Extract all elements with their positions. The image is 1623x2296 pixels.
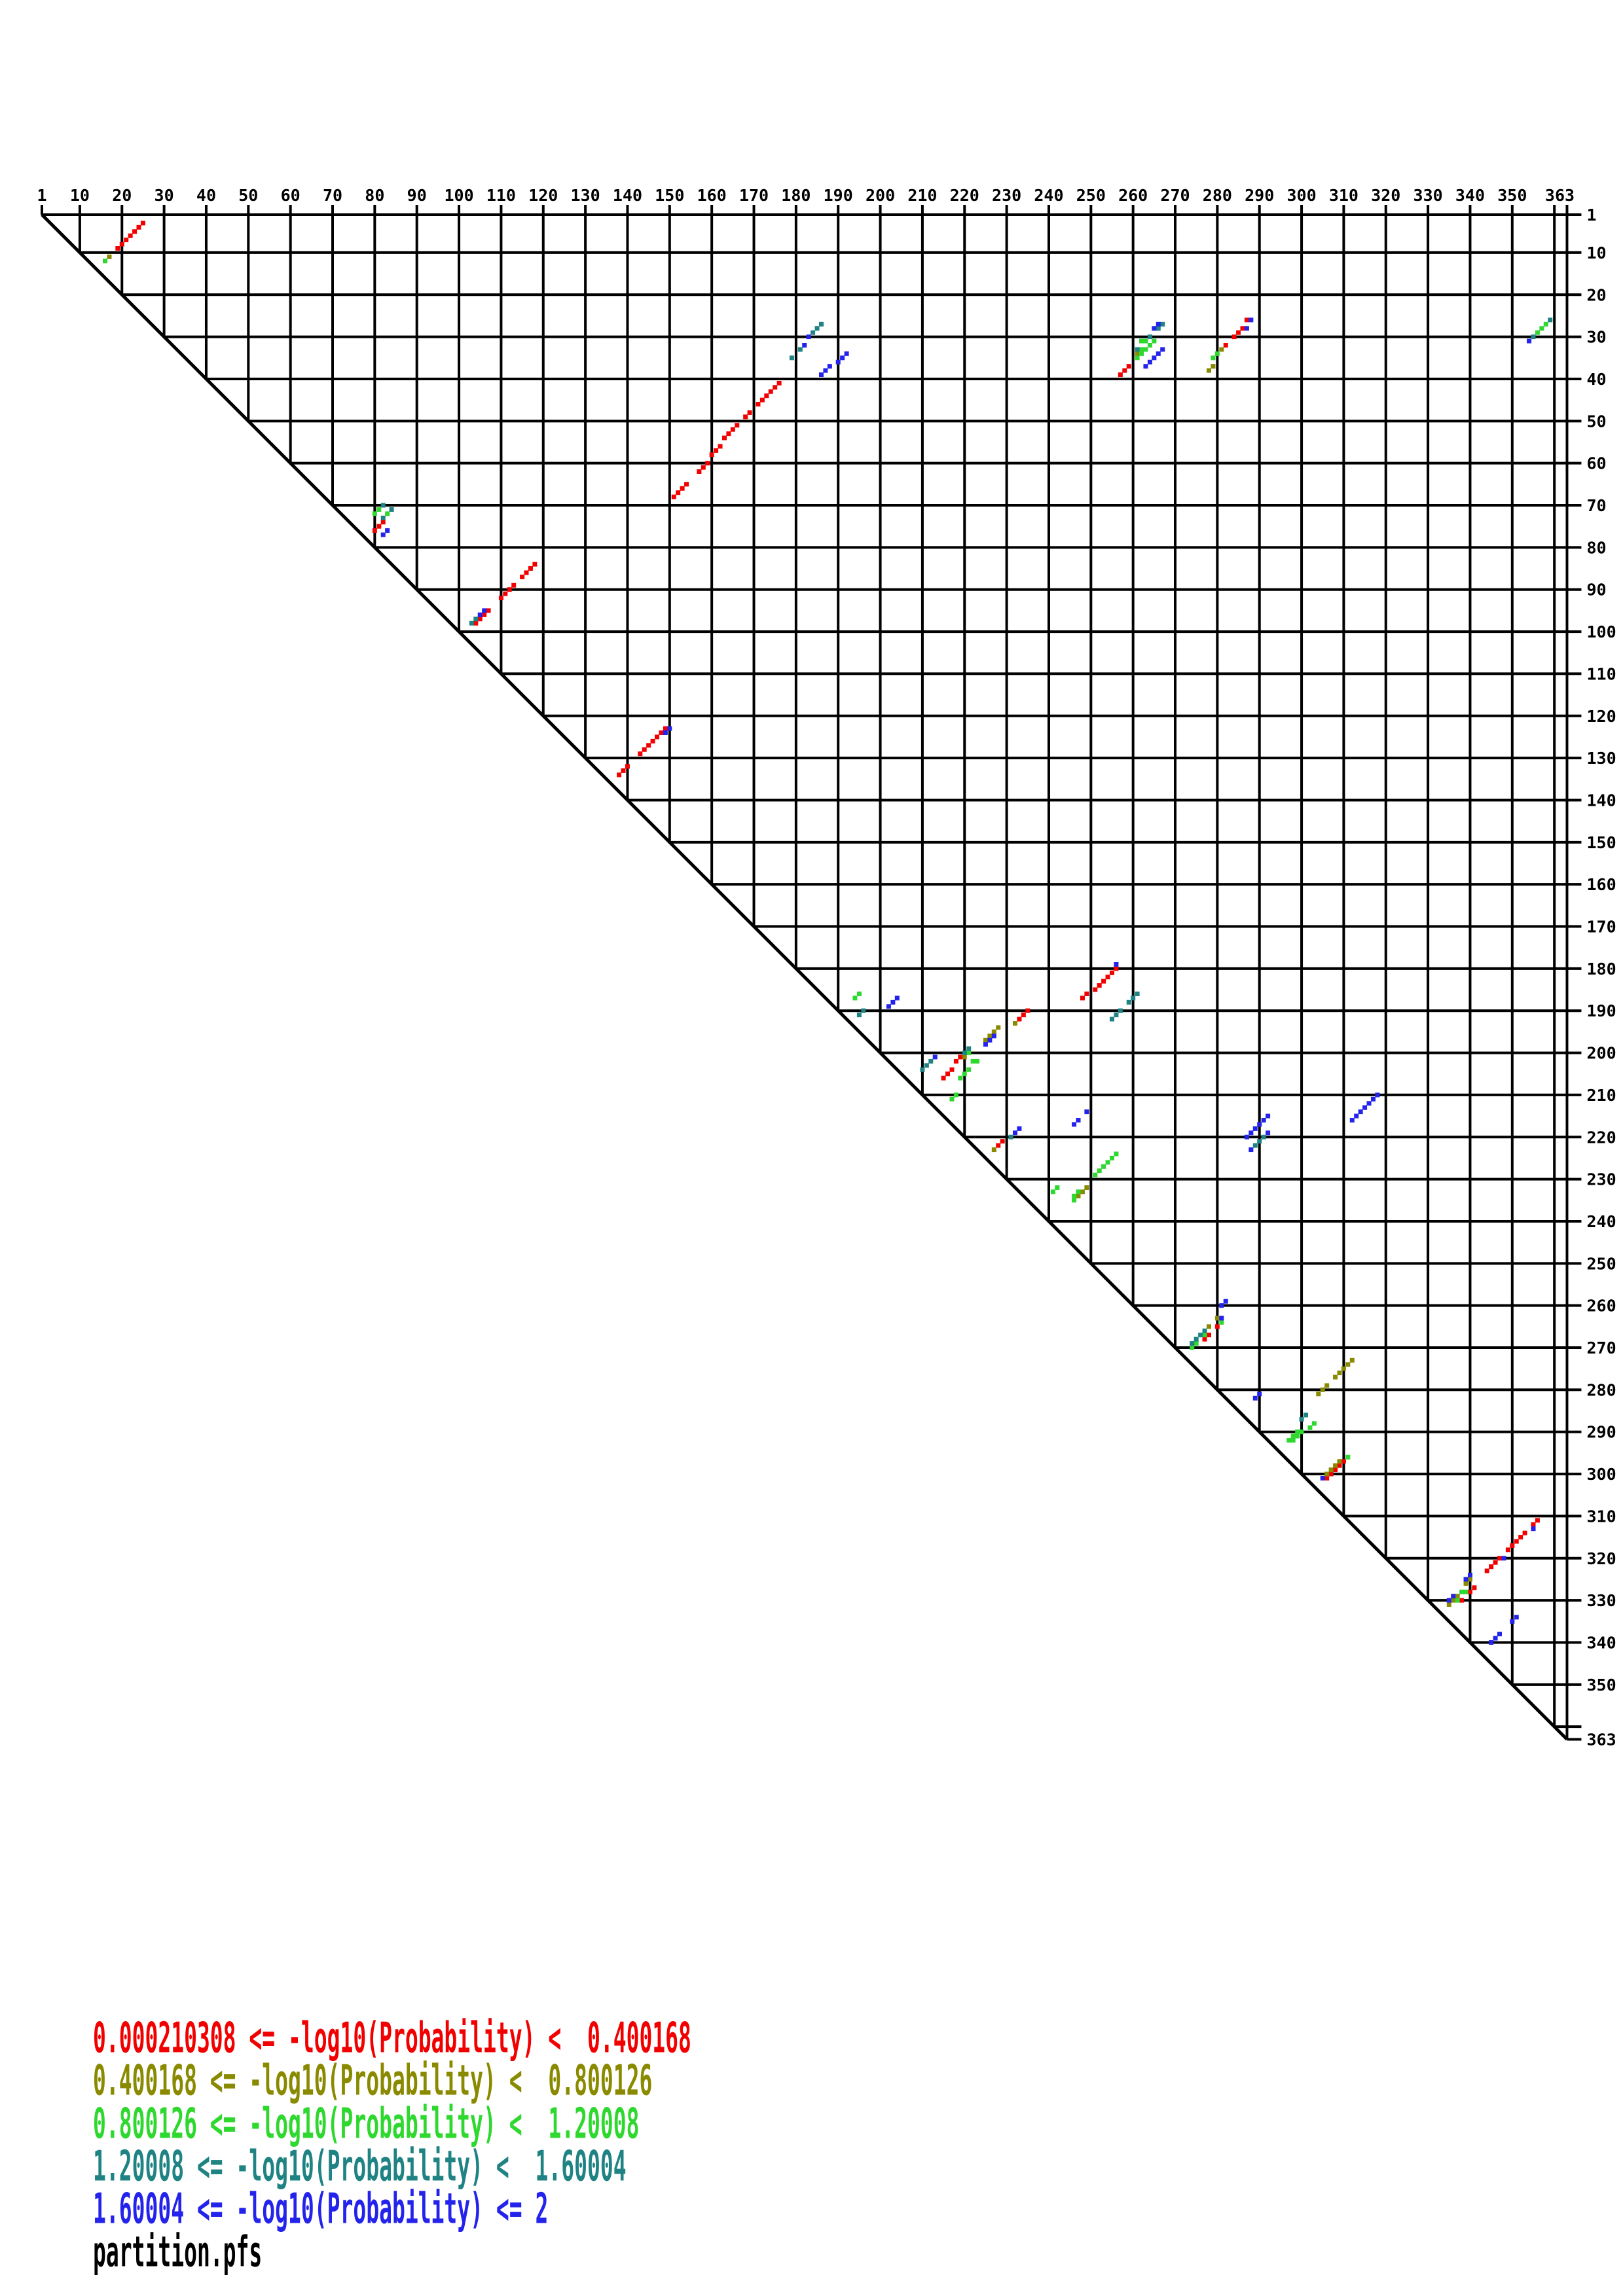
- dot-teal: [962, 1050, 967, 1055]
- top-axis-tick-label: 350: [1497, 186, 1527, 205]
- dot-blue: [385, 528, 390, 533]
- dot-green: [1312, 1421, 1317, 1426]
- dot-olive: [1321, 1388, 1325, 1392]
- dot-blue: [1489, 1640, 1493, 1645]
- top-axis-tick-label: 330: [1413, 186, 1443, 205]
- dot-blue: [1447, 1598, 1451, 1603]
- dot-red: [1497, 1556, 1502, 1560]
- top-axis-tick-label: 150: [655, 186, 684, 205]
- dot-red: [1510, 1543, 1514, 1548]
- dot-olive: [1451, 1598, 1455, 1603]
- dot-blue: [1245, 326, 1249, 331]
- right-axis-tick-label: 340: [1586, 1633, 1616, 1652]
- dot-green: [1464, 1590, 1468, 1594]
- dot-green: [373, 511, 377, 516]
- dot-red: [115, 246, 120, 251]
- dot-green: [1093, 1173, 1097, 1177]
- dot-red: [941, 1076, 946, 1081]
- dot-blue: [1527, 339, 1531, 344]
- dot-olive: [992, 1030, 996, 1034]
- dot-red: [532, 562, 537, 567]
- right-axis-tick-label: 110: [1586, 664, 1616, 683]
- top-axis-tick-label: 210: [907, 186, 937, 205]
- dot-blue: [1249, 1147, 1253, 1152]
- right-axis-tick-label: 363: [1586, 1730, 1616, 1749]
- dot-red: [1459, 1598, 1464, 1603]
- dot-green: [1072, 1198, 1076, 1202]
- dot-blue: [667, 726, 672, 731]
- dot-blue: [1076, 1118, 1081, 1122]
- dot-red: [722, 436, 727, 440]
- dot-teal: [1110, 1017, 1114, 1022]
- dot-teal: [928, 1059, 933, 1064]
- dot-red: [1245, 317, 1249, 322]
- dot-red: [726, 431, 731, 436]
- right-axis-tick-label: 40: [1586, 370, 1606, 389]
- dot-red: [714, 448, 718, 453]
- right-axis-tick-label: 350: [1586, 1676, 1616, 1695]
- dot-green: [103, 259, 107, 263]
- dot-blue: [1262, 1118, 1266, 1122]
- right-axis-tick-label: 180: [1586, 960, 1616, 978]
- dot-red: [1514, 1539, 1519, 1544]
- dot-teal: [1257, 1139, 1262, 1143]
- dot-green: [1455, 1598, 1460, 1603]
- dot-blue: [819, 372, 824, 377]
- top-axis-tick-label: 160: [697, 186, 727, 205]
- dot-green: [1219, 1320, 1224, 1325]
- dot-red: [511, 583, 516, 588]
- dot-red: [773, 385, 777, 389]
- dot-blue: [1160, 347, 1165, 351]
- right-axis-tick-label: 1: [1586, 206, 1596, 224]
- right-axis-tick-label: 280: [1586, 1380, 1616, 1399]
- dot-red: [663, 726, 668, 731]
- top-axis-tick-label: 130: [571, 186, 600, 205]
- dot-red: [949, 1067, 954, 1072]
- dot-green: [1300, 1429, 1304, 1434]
- dot-red: [1122, 368, 1127, 373]
- right-axis-tick-label: 270: [1586, 1338, 1616, 1357]
- top-axis-tick-label: 240: [1034, 186, 1063, 205]
- dot-red: [524, 570, 529, 575]
- top-axis-tick-label: 340: [1455, 186, 1485, 205]
- dot-green: [1055, 1185, 1059, 1190]
- dot-teal: [1118, 1009, 1123, 1013]
- dot-green: [1135, 355, 1140, 360]
- dot-teal: [861, 1009, 866, 1013]
- dot-blue: [828, 364, 832, 368]
- dot-teal: [920, 1067, 924, 1072]
- dot-blue: [992, 1033, 996, 1038]
- dot-olive: [1341, 1367, 1346, 1371]
- dot-blue: [1350, 1118, 1355, 1122]
- top-axis-tick-label: 300: [1286, 186, 1316, 205]
- dot-red: [748, 410, 752, 415]
- dot-blue: [1468, 1573, 1472, 1577]
- dot-red: [1240, 326, 1245, 331]
- right-axis-tick-label: 30: [1586, 328, 1606, 347]
- right-axis-tick-label: 50: [1586, 412, 1606, 431]
- top-axis-tick-label: 260: [1118, 186, 1148, 205]
- right-axis-tick-label: 160: [1586, 875, 1616, 894]
- dot-olive: [1324, 1472, 1329, 1477]
- dot-red: [659, 730, 663, 735]
- top-axis-tick-label: 30: [155, 186, 174, 205]
- dot-red: [1097, 983, 1102, 988]
- dot-green: [1194, 1341, 1199, 1346]
- right-axis-tick-label: 70: [1586, 496, 1606, 515]
- dot-red: [1485, 1569, 1489, 1573]
- dot-red: [1110, 971, 1114, 975]
- dot-teal: [1548, 317, 1552, 322]
- right-axis-tick-label: 230: [1586, 1170, 1616, 1189]
- right-axis-tick-label: 140: [1586, 791, 1616, 810]
- dot-green: [1139, 351, 1144, 356]
- dot-teal: [1135, 347, 1140, 351]
- axis-ticks: [42, 205, 1581, 1739]
- dot-blue: [1156, 322, 1161, 327]
- dot-green: [1051, 1189, 1055, 1194]
- dot-blue: [1148, 360, 1152, 365]
- dot-olive: [1215, 1316, 1220, 1320]
- dot-red: [954, 1059, 958, 1064]
- dot-green: [1114, 1152, 1118, 1157]
- dot-green: [966, 1050, 971, 1055]
- dot-red: [1232, 334, 1237, 339]
- dot-blue: [381, 533, 386, 537]
- dot-red: [1215, 1324, 1220, 1329]
- right-axis-tick-label: 90: [1586, 581, 1606, 600]
- dot-blue: [840, 355, 845, 360]
- right-axis-tick-label: 120: [1586, 707, 1616, 726]
- dot-red: [958, 1055, 962, 1060]
- dot-olive: [1464, 1581, 1468, 1586]
- top-axis-tick-label: 110: [486, 186, 516, 205]
- dot-olive: [1324, 1383, 1329, 1388]
- dot-green: [1215, 351, 1220, 356]
- dot-olive: [1333, 1375, 1338, 1380]
- dot-green: [1307, 1426, 1312, 1430]
- dot-green: [971, 1059, 976, 1064]
- dot-red: [764, 393, 769, 398]
- dot-green: [385, 511, 390, 516]
- dot-green: [1295, 1434, 1300, 1439]
- dot-olive: [1447, 1602, 1451, 1607]
- top-axis-tick-label: 190: [824, 186, 853, 205]
- dot-blue: [1017, 1126, 1021, 1131]
- dot-green: [1106, 1160, 1110, 1164]
- dot-red: [478, 617, 483, 621]
- dot-red: [1106, 975, 1110, 979]
- dot-red: [381, 520, 386, 524]
- dot-teal: [1300, 1417, 1304, 1422]
- dot-teal: [473, 617, 478, 621]
- dot-green: [949, 1097, 954, 1102]
- dot-red: [1093, 988, 1097, 992]
- dot-blue: [478, 613, 483, 617]
- dot-red: [705, 461, 710, 465]
- dot-red: [137, 225, 141, 230]
- dot-red: [701, 465, 706, 470]
- dot-blue: [1257, 1391, 1262, 1396]
- dot-teal: [1304, 1412, 1308, 1417]
- dot-red: [1468, 1590, 1472, 1594]
- dot-olive: [107, 255, 111, 259]
- dot-olive: [1350, 1358, 1355, 1363]
- dot-red: [1489, 1564, 1493, 1569]
- right-axis-tick-label: 100: [1586, 622, 1616, 641]
- dot-red: [756, 402, 760, 406]
- dot-red: [996, 1143, 1000, 1148]
- dot-teal: [1190, 1341, 1194, 1346]
- dot-green: [1101, 1164, 1106, 1169]
- dot-red: [473, 621, 478, 626]
- right-axis-tick-label: 330: [1586, 1591, 1616, 1610]
- dot-green: [852, 996, 857, 1000]
- dot-teal: [381, 503, 386, 508]
- right-axis-tick-label: 190: [1586, 1001, 1616, 1020]
- right-axis-tick-label: 60: [1586, 454, 1606, 473]
- top-axis-tick-label: 363: [1545, 186, 1575, 205]
- dot-blue: [1359, 1109, 1363, 1114]
- dot-red: [503, 592, 507, 596]
- dot-green: [962, 1071, 967, 1076]
- dot-green: [1535, 331, 1540, 335]
- top-axis-tick-label: 270: [1160, 186, 1190, 205]
- dot-red: [1021, 1013, 1026, 1017]
- dot-red: [718, 444, 723, 448]
- dot-teal: [966, 1047, 971, 1051]
- dot-red: [1114, 966, 1118, 971]
- dot-teal: [1198, 1333, 1203, 1337]
- right-axis-tick-label: 320: [1586, 1549, 1616, 1568]
- dot-red: [1329, 1472, 1334, 1477]
- dot-blue: [1253, 1126, 1258, 1131]
- top-axis-tick-label: 290: [1245, 186, 1274, 205]
- dot-blue: [1143, 364, 1148, 368]
- top-axis-tick-label: 1: [37, 186, 46, 205]
- dot-blue: [1114, 962, 1118, 967]
- dot-green: [857, 992, 862, 996]
- dot-blue: [802, 343, 807, 348]
- dot-green: [1097, 1168, 1102, 1173]
- dot-red: [735, 423, 739, 427]
- right-axis-tick-label: 200: [1586, 1044, 1616, 1063]
- dot-blue: [1493, 1636, 1498, 1641]
- dot-olive: [1455, 1594, 1460, 1598]
- right-axis-tick-label: 220: [1586, 1128, 1616, 1147]
- dot-red: [1535, 1518, 1540, 1522]
- dot-teal: [924, 1063, 929, 1067]
- dot-teal: [857, 1013, 862, 1017]
- top-axis-tick-label: 230: [992, 186, 1021, 205]
- dot-red: [625, 764, 630, 768]
- dot-green: [1152, 339, 1156, 344]
- dot-red: [621, 768, 626, 773]
- dot-red: [1523, 1531, 1527, 1535]
- dot-olive: [1076, 1194, 1081, 1198]
- dot-red: [676, 490, 680, 495]
- top-axis-tick-label: 280: [1203, 186, 1232, 205]
- dot-blue: [1013, 1130, 1017, 1135]
- dot-green: [1291, 1438, 1296, 1443]
- dot-green: [1345, 1455, 1350, 1460]
- dot-teal: [819, 322, 824, 327]
- dot-green: [1291, 1434, 1296, 1439]
- dot-red: [672, 495, 676, 499]
- dot-red: [1025, 1009, 1030, 1013]
- dot-olive: [1468, 1577, 1472, 1581]
- dot-teal: [1148, 334, 1152, 339]
- dot-blue: [983, 1042, 988, 1047]
- dot-blue: [845, 351, 849, 356]
- dot-red: [1080, 996, 1085, 1000]
- dot-blue: [836, 360, 841, 365]
- dot-blue: [1156, 351, 1161, 356]
- dot-green: [1459, 1590, 1464, 1594]
- dot-olive: [992, 1147, 996, 1152]
- dot-teal: [1203, 1329, 1207, 1333]
- top-axis-tick-label: 120: [528, 186, 558, 205]
- dot-red: [680, 486, 685, 491]
- probability-dot-plot: 1110102020303040405050606070708080909010…: [0, 0, 1623, 2296]
- dot-blue: [1249, 1130, 1253, 1135]
- top-axis-tick-label: 170: [739, 186, 769, 205]
- dot-blue: [1224, 1299, 1228, 1304]
- grid-line: [42, 215, 1567, 1739]
- dot-red: [777, 381, 782, 386]
- dot-teal: [1135, 992, 1140, 996]
- dot-olive: [987, 1033, 992, 1038]
- right-axis-tick-label: 260: [1586, 1297, 1616, 1316]
- dot-red: [1236, 331, 1241, 335]
- dot-red: [373, 528, 377, 533]
- dot-green: [1544, 322, 1548, 327]
- dot-olive: [1333, 1463, 1338, 1468]
- dot-green: [1076, 1189, 1081, 1194]
- dot-red: [1506, 1547, 1510, 1552]
- dot-blue: [933, 1055, 938, 1060]
- dot-green: [1295, 1429, 1300, 1434]
- dot-red: [376, 524, 381, 529]
- dot-blue: [1266, 1130, 1270, 1135]
- dot-green: [1139, 347, 1144, 351]
- top-axis-tick-label: 40: [196, 186, 216, 205]
- right-axis-tick-label: 20: [1586, 285, 1606, 304]
- dot-blue: [895, 996, 900, 1000]
- dot-olive: [983, 1038, 988, 1043]
- right-axis-tick-label: 10: [1586, 243, 1606, 262]
- dot-green: [1286, 1438, 1291, 1443]
- dot-red: [1207, 1333, 1211, 1337]
- dot-blue: [1371, 1097, 1376, 1102]
- dot-red: [731, 427, 735, 432]
- dot-olive: [1080, 1189, 1085, 1194]
- dot-red: [1118, 372, 1123, 377]
- dot-red: [528, 566, 533, 571]
- top-axis-tick-label: 140: [613, 186, 642, 205]
- dot-olive: [962, 1055, 967, 1060]
- dot-red: [1333, 1467, 1338, 1472]
- dot-olive: [1337, 1459, 1341, 1463]
- dot-blue: [1514, 1615, 1519, 1619]
- dot-blue: [1510, 1619, 1514, 1624]
- dot-blue: [823, 368, 828, 373]
- dot-blue: [1072, 1122, 1076, 1126]
- dot-red: [499, 596, 503, 600]
- top-axis-tick-label: 10: [70, 186, 90, 205]
- right-axis-tick-label: 80: [1586, 538, 1606, 557]
- dot-red: [1000, 1139, 1005, 1143]
- dot-red: [1101, 979, 1106, 984]
- dot-teal: [790, 355, 794, 360]
- dot-red: [760, 398, 765, 403]
- dot-green: [1110, 1156, 1114, 1160]
- top-axis-tick-label: 250: [1076, 186, 1106, 205]
- top-axis-tick-label: 60: [281, 186, 301, 205]
- dot-teal: [1253, 1143, 1258, 1148]
- dot-green: [1139, 339, 1144, 344]
- top-axis-tick-label: 50: [238, 186, 258, 205]
- dot-blue: [886, 1004, 891, 1009]
- dot-olive: [1135, 351, 1140, 356]
- dot-green: [966, 1067, 971, 1072]
- dot-teal: [798, 347, 803, 351]
- dot-teal: [1156, 326, 1161, 331]
- dot-red: [697, 469, 701, 474]
- grid-lines: [42, 215, 1567, 1739]
- dot-teal: [1531, 334, 1535, 339]
- dot-blue: [890, 1000, 895, 1005]
- dot-blue: [1257, 1122, 1262, 1126]
- dot-red: [482, 613, 486, 617]
- dot-green: [954, 1092, 958, 1097]
- dot-red: [1324, 1476, 1329, 1480]
- dot-green: [1190, 1346, 1194, 1350]
- dot-red: [655, 734, 659, 739]
- dot-blue: [663, 730, 668, 735]
- top-axis-tick-label: 200: [866, 186, 895, 205]
- dot-blue: [1497, 1632, 1502, 1636]
- dot-red: [638, 751, 642, 756]
- dot-red: [128, 234, 133, 238]
- dot-red: [507, 587, 512, 592]
- right-axis-tick-label: 310: [1586, 1507, 1616, 1526]
- dot-red: [642, 747, 647, 752]
- dot-red: [646, 743, 651, 747]
- dot-teal: [1114, 1013, 1118, 1017]
- dot-olive: [1337, 1371, 1341, 1375]
- dot-green: [958, 1076, 962, 1081]
- dot-green: [1072, 1194, 1076, 1198]
- dot-red: [651, 739, 655, 744]
- top-axis-tick-label: 20: [112, 186, 132, 205]
- dot-red: [124, 238, 128, 242]
- dot-blue: [807, 334, 811, 339]
- dot-green: [975, 1059, 979, 1064]
- right-axis-tick-label: 150: [1586, 833, 1616, 852]
- dot-red: [710, 452, 714, 457]
- dot-blue: [1362, 1105, 1367, 1110]
- dot-red: [945, 1071, 950, 1076]
- dot-red: [1518, 1535, 1523, 1539]
- dot-blue: [1219, 1316, 1224, 1320]
- dot-blue: [1266, 1114, 1270, 1119]
- dot-teal: [390, 507, 394, 512]
- dot-blue: [1321, 1476, 1325, 1480]
- dot-olive: [1211, 364, 1215, 368]
